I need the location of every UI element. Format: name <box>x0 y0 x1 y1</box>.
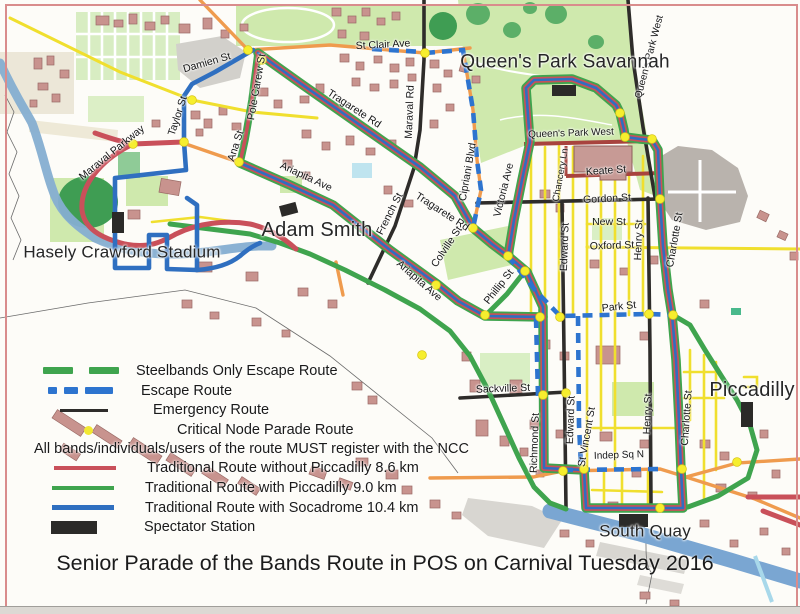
legend-row-emergency: Emergency Route <box>34 401 474 421</box>
street-label: Edward St <box>559 223 571 272</box>
legend-label: Emergency Route <box>153 402 269 418</box>
street-label: Henry St <box>633 219 645 260</box>
legend-label: Critical Node Parade Route <box>177 422 354 438</box>
red-line-icon <box>34 466 138 471</box>
legend-label: Escape Route <box>141 383 232 399</box>
street-label: St Clair Ave <box>355 38 410 51</box>
street-label: Edward St <box>565 396 577 445</box>
street-label: Keate St <box>586 164 627 177</box>
legend-label: Steelbands Only Escape Route <box>136 363 338 379</box>
legend-label: Traditional Route with Socadrome 10.4 km <box>145 500 418 516</box>
street-label: Indep Sq N <box>594 450 644 462</box>
legend-row-traditional-blue: Traditional Route with Socadrome 10.4 km <box>34 498 474 518</box>
street-label: Gordon St <box>583 193 631 206</box>
place-label: Hasely Crawford Stadium <box>23 244 220 261</box>
critical-node-dot-icon <box>34 426 168 435</box>
place-label: Queen's Park Savannah <box>460 53 670 72</box>
street-label: Sackville St <box>476 383 531 395</box>
legend-label: Spectator Station <box>144 519 255 535</box>
map-page: St Clair AveDamien StMaraval ParkwayTayl… <box>0 0 800 614</box>
place-label: South Quay <box>599 523 691 540</box>
legend: Steelbands Only Escape Route Escape Rout… <box>34 361 474 537</box>
legend-row-steelbands: Steelbands Only Escape Route <box>34 361 474 381</box>
street-label: Oxford St <box>590 240 635 252</box>
steelbands-dash-icon <box>34 367 127 374</box>
legend-row-traditional-red: Traditional Route without Piccadilly 8.6… <box>34 458 474 478</box>
legend-row-traditional-green: Traditional Route with Piccadilly 9.0 km <box>34 478 474 498</box>
legend-row-spectator: Spectator Station <box>34 518 474 538</box>
map-title: Senior Parade of the Bands Route in POS … <box>0 551 770 576</box>
legend-note: All bands/individuals/users of the route… <box>34 441 474 457</box>
place-label: Adam Smith <box>262 220 373 240</box>
legend-label: Traditional Route without Piccadilly 8.6… <box>147 460 419 476</box>
street-label: New St <box>592 217 626 228</box>
legend-row-critical-node: Critical Node Parade Route <box>34 420 474 440</box>
blue-line-icon <box>34 505 136 510</box>
emergency-line-icon <box>34 409 144 413</box>
place-label: Piccadilly <box>709 380 794 400</box>
legend-label: Traditional Route with Piccadilly 9.0 km <box>145 480 397 496</box>
street-label: Henry St <box>642 393 654 434</box>
scan-edge <box>0 606 800 614</box>
green-line-icon <box>34 486 136 491</box>
spectator-rect-icon <box>34 521 135 534</box>
street-label: Maraval Rd <box>404 85 416 139</box>
street-label: Richmond St <box>529 413 542 473</box>
escape-dash-icon <box>34 387 132 394</box>
legend-row-escape: Escape Route <box>34 381 474 401</box>
